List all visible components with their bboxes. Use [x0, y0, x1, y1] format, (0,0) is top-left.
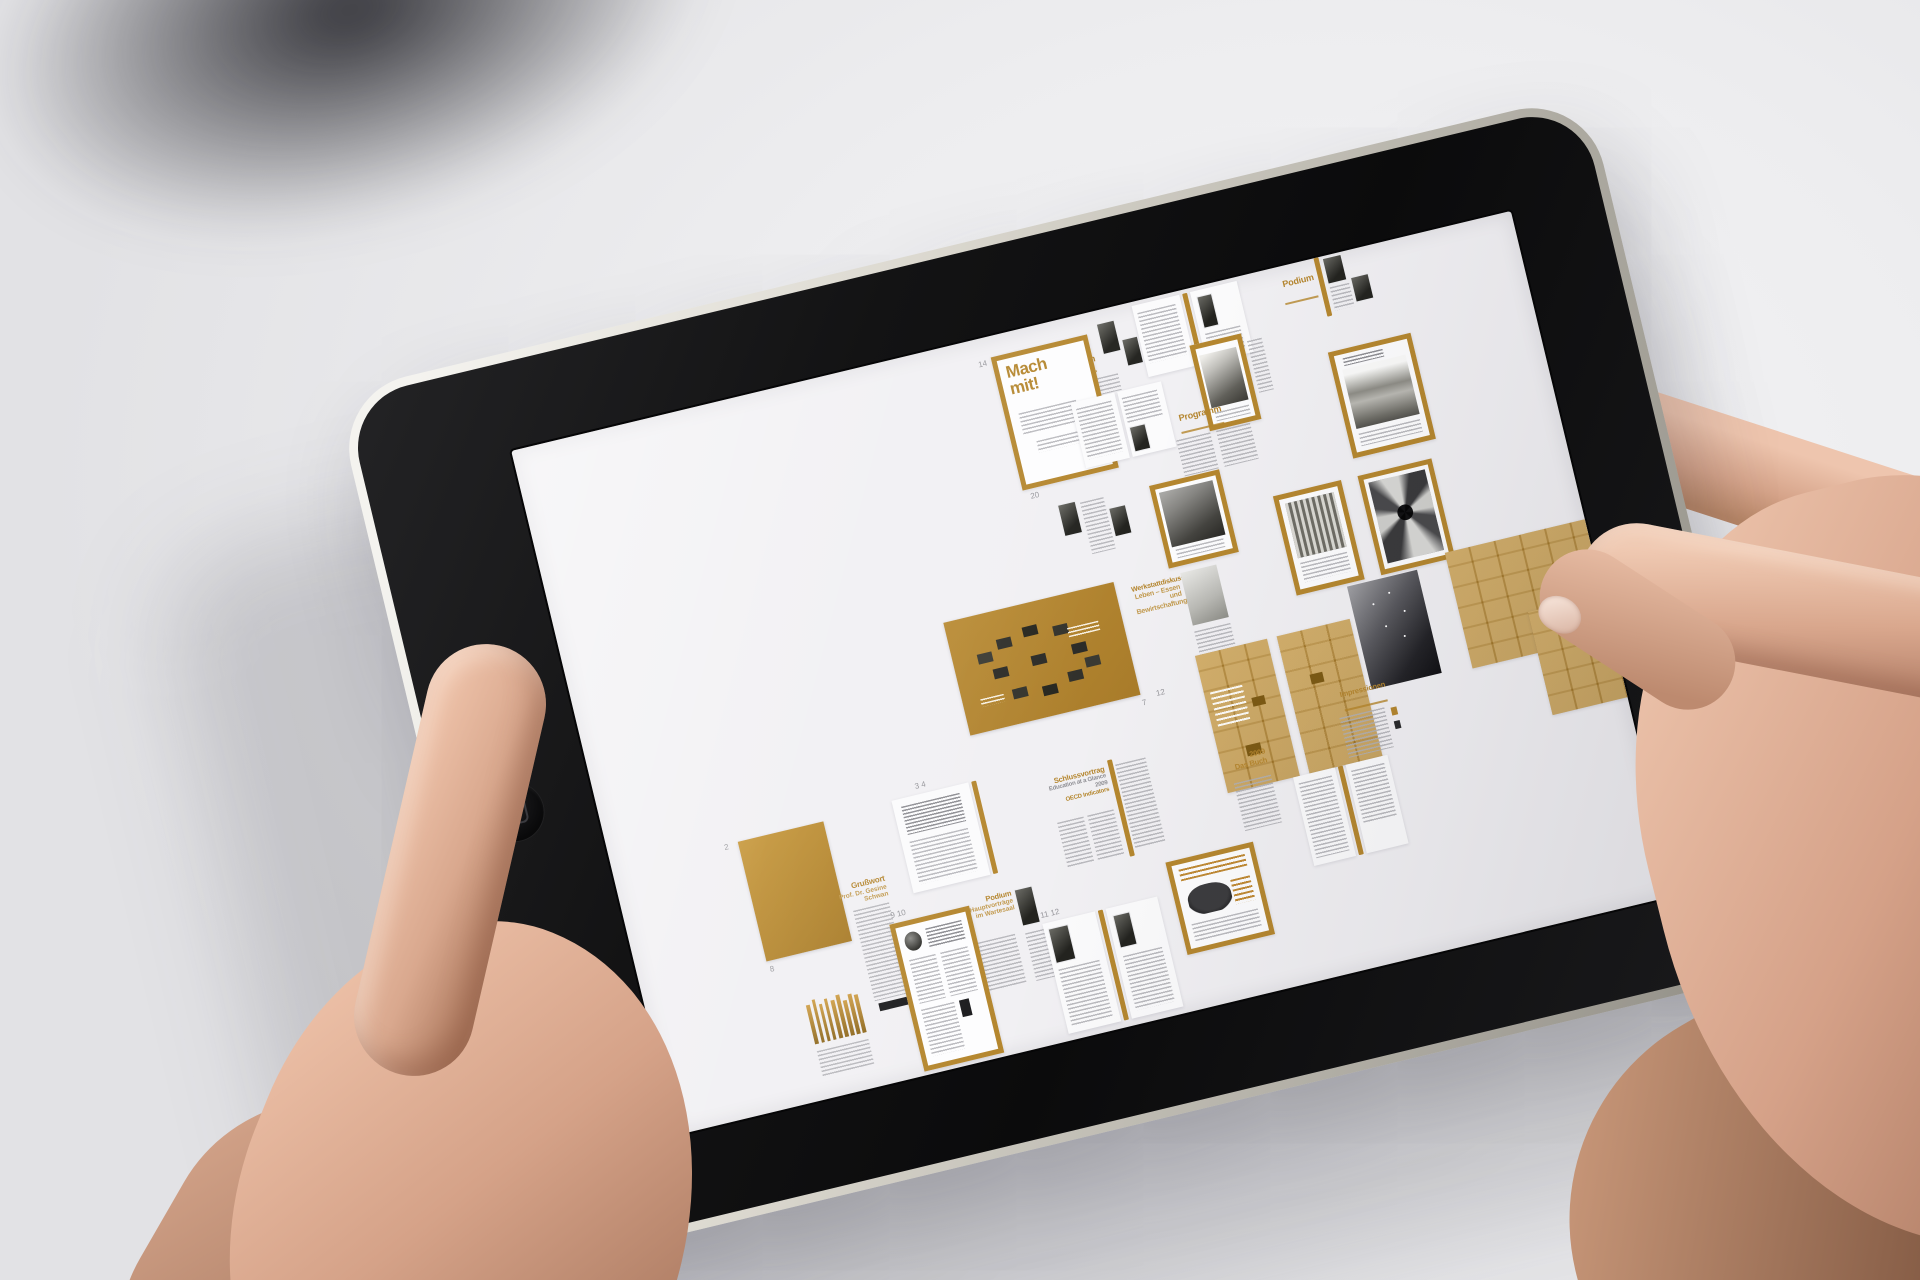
text-block — [909, 828, 978, 885]
page-number: 8 — [769, 964, 775, 974]
text-block — [1080, 497, 1116, 555]
text-block — [1351, 763, 1397, 824]
bw-photo — [1159, 481, 1225, 547]
spread-dark-room-photo[interactable] — [1149, 469, 1239, 568]
text-block — [909, 954, 946, 1004]
caption-chip — [1309, 672, 1324, 685]
bw-photo — [1342, 354, 1420, 429]
text-block — [1076, 401, 1123, 460]
page-number: 14 — [977, 359, 988, 370]
tables-arrangement-photo — [1031, 653, 1048, 666]
text-block — [1330, 282, 1354, 310]
spread-podium-top[interactable]: Podium — [1261, 245, 1386, 333]
text-block — [1339, 708, 1393, 758]
symbol-mark — [1394, 720, 1402, 729]
mini-bar-chart — [805, 989, 866, 1044]
spread-impressionen[interactable]: Impressionen — [1325, 672, 1418, 765]
spread-pipes-photo[interactable] — [1273, 480, 1365, 596]
caption-text — [1067, 621, 1100, 637]
spread-heading: Podium — [1264, 272, 1316, 300]
car-photo — [1185, 879, 1235, 917]
spread-heading: 2009 Das Buch — [1222, 748, 1268, 774]
spread-tables-photo[interactable]: 7 — [944, 581, 1141, 735]
photo-thumbnail — [1122, 337, 1142, 365]
text-block — [1123, 947, 1175, 1011]
photo-thumbnail — [1015, 886, 1040, 925]
news-photo — [959, 998, 973, 1017]
text-block — [817, 1039, 874, 1077]
caption-chip — [1251, 694, 1266, 707]
framed-page — [1149, 469, 1239, 568]
heading-rule — [1285, 295, 1318, 305]
page-thumbnail — [1042, 912, 1120, 1034]
tablet-screen[interactable]: Podium Reden 14 — [511, 211, 1675, 1136]
text-block — [1216, 423, 1259, 467]
photo-thumbnail — [1323, 254, 1346, 283]
bw-photo — [1180, 564, 1229, 625]
text-block — [1122, 390, 1163, 424]
text-block — [1036, 431, 1080, 453]
page-number: 2 — [723, 842, 729, 852]
spread-small-columns[interactable] — [1057, 483, 1148, 566]
spread-heading: Werkstattdiskussion Leben – Essen und Be… — [1131, 576, 1185, 618]
framed-page — [1358, 458, 1456, 575]
bw-photo — [1285, 492, 1347, 557]
white-text-block — [1210, 685, 1250, 728]
framed-page — [1273, 480, 1365, 596]
photo-thumbnail — [1058, 502, 1082, 536]
photo-scene: Podium Reden 14 — [0, 0, 1920, 1280]
orange-photo-spread — [944, 581, 1141, 735]
cover-title: Mach mit! — [1005, 356, 1053, 397]
spread-xray-photo[interactable] — [1358, 458, 1456, 575]
text-block — [921, 1002, 966, 1057]
page-thumbnail — [1105, 897, 1183, 1019]
photo-thumbnail — [1110, 505, 1132, 536]
photo-thumbnail — [1097, 321, 1121, 354]
framed-page — [1328, 333, 1435, 459]
photo-thumbnail — [1114, 913, 1137, 947]
caption-text — [980, 694, 1006, 708]
photo-thumbnail — [1049, 925, 1075, 962]
spread-programm[interactable]: Programm — [1162, 390, 1264, 482]
text-block — [925, 920, 966, 948]
bw-photo — [1369, 469, 1445, 563]
page-number: 12 — [1155, 687, 1166, 698]
text-block — [901, 793, 966, 835]
spread-heading: Programm — [1169, 403, 1222, 425]
text-block — [1300, 552, 1351, 583]
photo-thumbnail — [1130, 424, 1150, 451]
spread-heading: Schlussvortrag Education at a Glance 200… — [1042, 765, 1110, 808]
page-number: 20 — [1030, 490, 1041, 501]
spread-car-ad[interactable] — [1165, 841, 1275, 955]
text-block — [1057, 817, 1094, 867]
text-block — [940, 946, 979, 997]
text-block — [1234, 774, 1282, 830]
photo-thumbnail — [1197, 294, 1218, 328]
text-block — [1138, 304, 1188, 363]
spread-magazine-page[interactable] — [1328, 333, 1435, 459]
text-block — [1299, 776, 1350, 859]
page-number: 7 — [1141, 697, 1147, 707]
text-block — [1115, 757, 1166, 849]
framed-ad — [1165, 841, 1275, 955]
symbol-mark — [1391, 706, 1399, 715]
news-photo — [903, 930, 924, 952]
page-number: 3 4 — [914, 780, 927, 791]
spread-schlussvortrag[interactable]: Schlussvortrag Education at a Glance 200… — [1039, 750, 1172, 872]
ad-text — [1231, 875, 1256, 904]
text-block — [1088, 809, 1125, 859]
ad-headline — [1178, 854, 1246, 881]
text-block — [1059, 959, 1113, 1026]
photo-thumbnail — [1351, 274, 1373, 301]
